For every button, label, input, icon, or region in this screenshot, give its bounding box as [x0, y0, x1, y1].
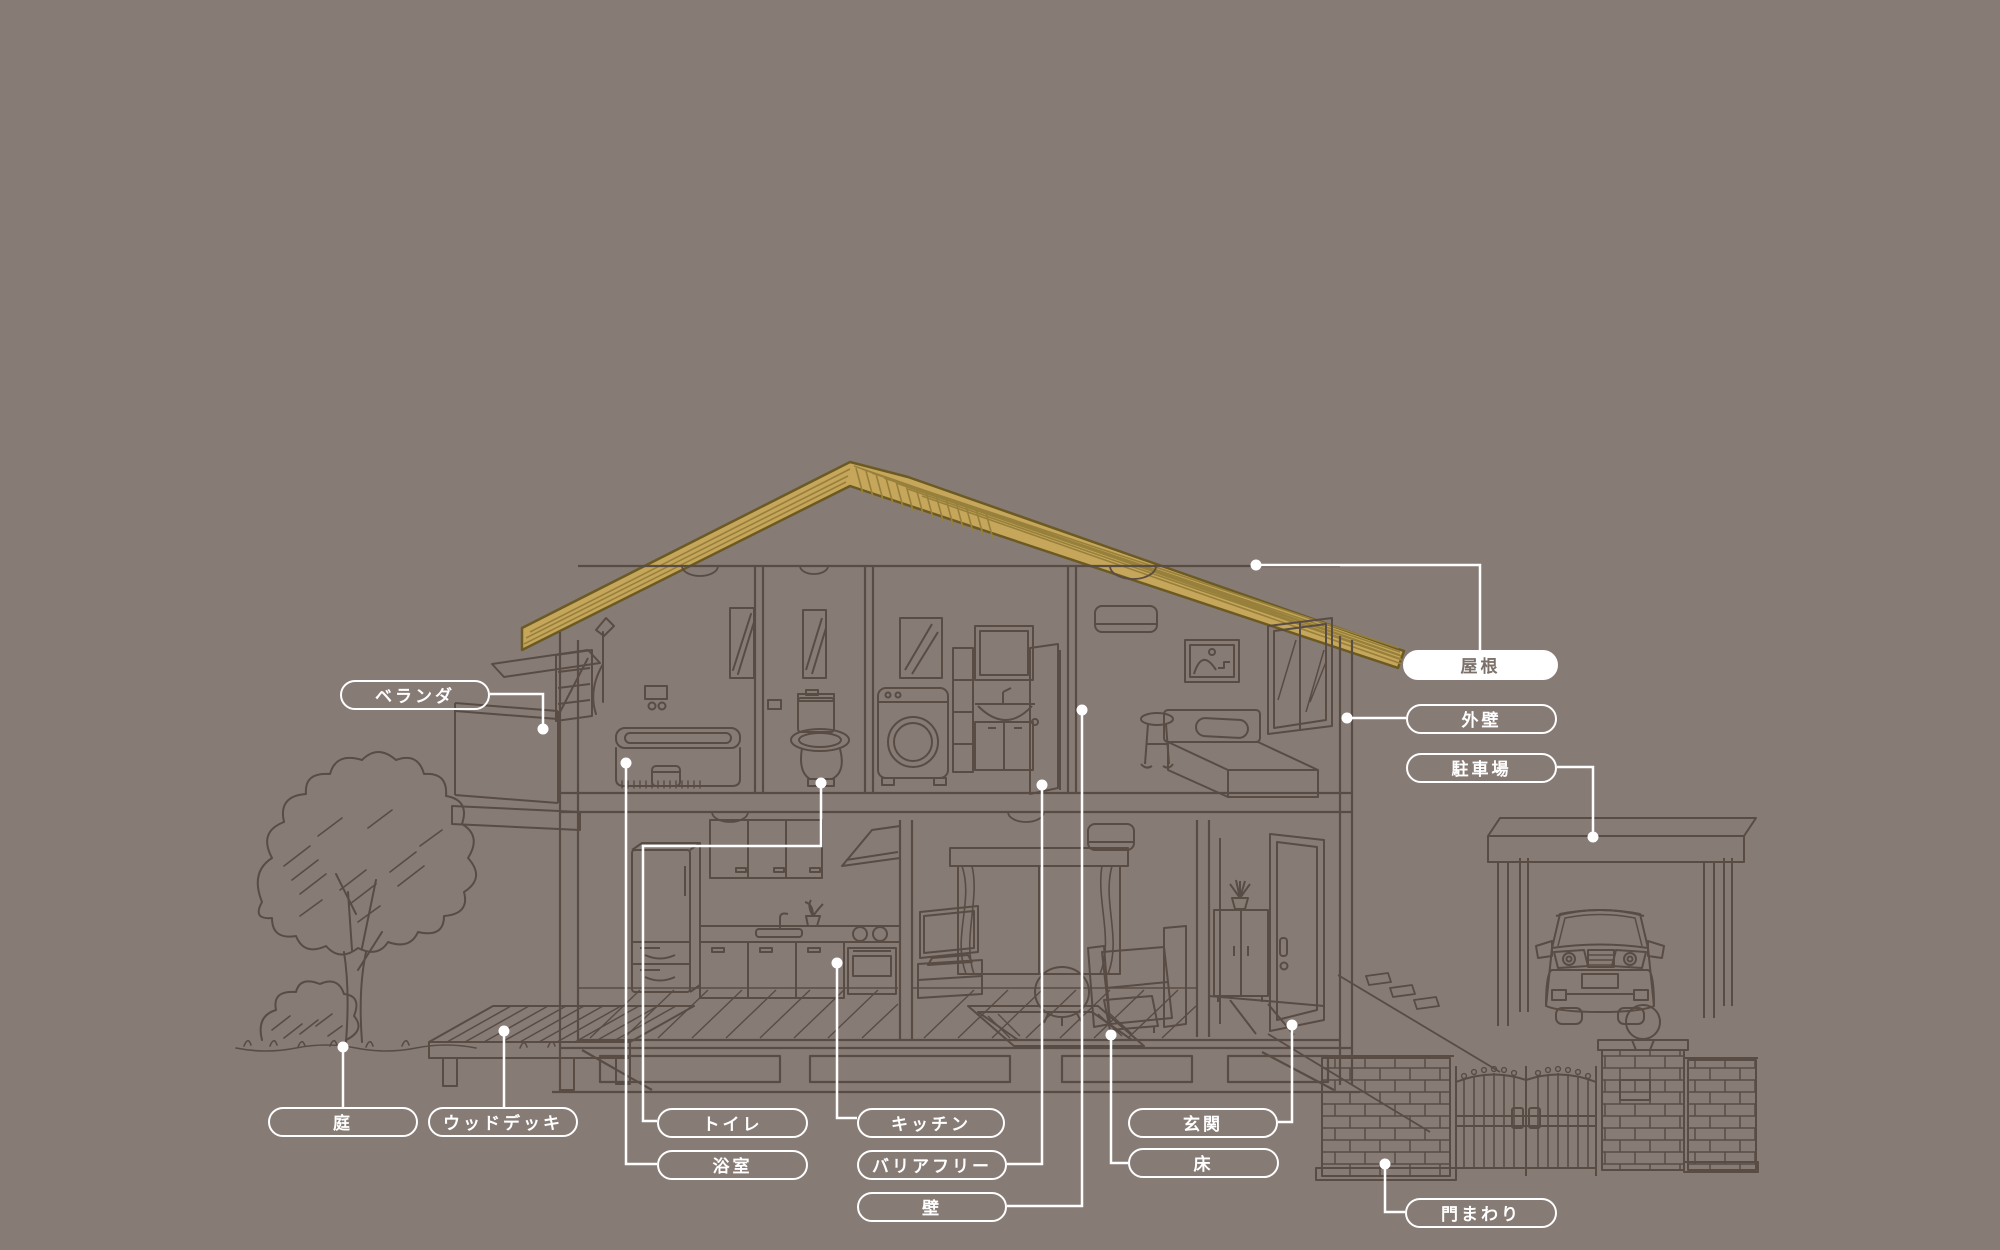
- leader-dot-toilet: [816, 778, 827, 789]
- label-wall[interactable]: 壁: [857, 1192, 1007, 1222]
- label-veranda[interactable]: ベランダ: [340, 680, 490, 710]
- air-conditioner: [1095, 606, 1157, 632]
- label-barrier-free-text: バリアフリー: [872, 1158, 992, 1175]
- label-entrance-text: 玄関: [1183, 1116, 1223, 1133]
- toilet-fixture: [791, 690, 849, 786]
- label-entrance[interactable]: 玄関: [1128, 1108, 1278, 1138]
- entrance-hall: [1209, 834, 1324, 1035]
- label-kitchen[interactable]: キッチン: [857, 1108, 1005, 1138]
- label-bathroom-text: 浴室: [713, 1158, 753, 1175]
- leader-veranda: [490, 694, 543, 729]
- label-exterior-wall-text: 外壁: [1462, 712, 1502, 729]
- leader-dot-barrier-free: [1037, 780, 1048, 791]
- label-roof[interactable]: 屋根: [1403, 650, 1558, 680]
- bathroom-room: [593, 608, 754, 788]
- kitchen-counter: [700, 900, 900, 998]
- bedside-stool: [1141, 713, 1173, 768]
- leader-dot-wall: [1077, 705, 1088, 716]
- leader-dot-wood-deck: [499, 1026, 510, 1037]
- label-garden[interactable]: 庭: [268, 1107, 418, 1137]
- label-roof-text: 屋根: [1461, 658, 1501, 675]
- living-air-conditioner: [1088, 824, 1134, 850]
- leader-dot-garden: [338, 1042, 349, 1053]
- tv: [918, 906, 982, 998]
- label-parking[interactable]: 駐車場: [1406, 753, 1557, 783]
- leader-toilet: [643, 783, 821, 1121]
- washing-machine: [878, 688, 948, 785]
- living-room: [918, 824, 1186, 1046]
- kitchen-cabinets: [710, 820, 822, 878]
- vanity: [953, 626, 1035, 772]
- house-parts-diagram: ベランダ 屋根 外壁 駐車場 庭 ウッドデッキ トイレ 浴室 キッチン バリアフ…: [0, 0, 2000, 1250]
- leader-floor: [1111, 1035, 1128, 1163]
- label-kitchen-text: キッチン: [891, 1116, 971, 1133]
- label-garden-text: 庭: [333, 1115, 353, 1132]
- car: [1536, 910, 1664, 1024]
- living-window: [950, 848, 1128, 974]
- label-gate-area-text: 門まわり: [1441, 1206, 1521, 1223]
- gate-area: [1316, 1005, 1758, 1180]
- leader-dot-kitchen: [832, 958, 843, 969]
- bathtub: [616, 728, 740, 748]
- bed: [1164, 710, 1318, 797]
- label-parking-text: 駐車場: [1452, 761, 1512, 778]
- picture-frame: [1185, 640, 1239, 682]
- leader-parking: [1557, 767, 1593, 837]
- sofa: [1088, 926, 1186, 1027]
- shoe-cabinet: [1214, 880, 1268, 1002]
- label-veranda-text: ベランダ: [375, 688, 455, 705]
- label-floor-text: 床: [1194, 1156, 1214, 1173]
- label-floor[interactable]: 床: [1128, 1148, 1279, 1178]
- house-illustration: [0, 0, 2000, 1250]
- label-wood-deck-text: ウッドデッキ: [443, 1115, 563, 1132]
- leader-dot-bathroom: [621, 758, 632, 769]
- brick-wall-left: [1322, 1058, 1450, 1176]
- leader-dot-gate-area: [1380, 1159, 1391, 1170]
- label-wall-text: 壁: [922, 1200, 942, 1217]
- leader-dot-exterior-wall: [1342, 713, 1353, 724]
- toilet-room: [768, 610, 849, 786]
- leader-dot-parking: [1588, 832, 1599, 843]
- range-hood: [842, 826, 900, 866]
- barrier-free-door: [1030, 644, 1060, 794]
- label-wood-deck[interactable]: ウッドデッキ: [428, 1107, 578, 1137]
- leader-dot-roof: [1251, 560, 1262, 571]
- carport: [1488, 818, 1756, 1026]
- label-exterior-wall[interactable]: 外壁: [1406, 704, 1557, 734]
- brick-wall-far-right: [1688, 1060, 1756, 1170]
- leader-dot-floor: [1106, 1030, 1117, 1041]
- leader-dot-veranda: [538, 724, 549, 735]
- brick-pillar-right: [1598, 1005, 1688, 1170]
- washroom: [878, 618, 1060, 794]
- label-barrier-free[interactable]: バリアフリー: [857, 1150, 1007, 1180]
- iron-gate: [1456, 1066, 1596, 1176]
- leader-dot-entrance: [1287, 1020, 1298, 1031]
- label-toilet[interactable]: トイレ: [657, 1108, 808, 1138]
- label-toilet-text: トイレ: [703, 1116, 763, 1133]
- label-gate-area[interactable]: 門まわり: [1405, 1198, 1557, 1228]
- label-bathroom[interactable]: 浴室: [657, 1150, 808, 1180]
